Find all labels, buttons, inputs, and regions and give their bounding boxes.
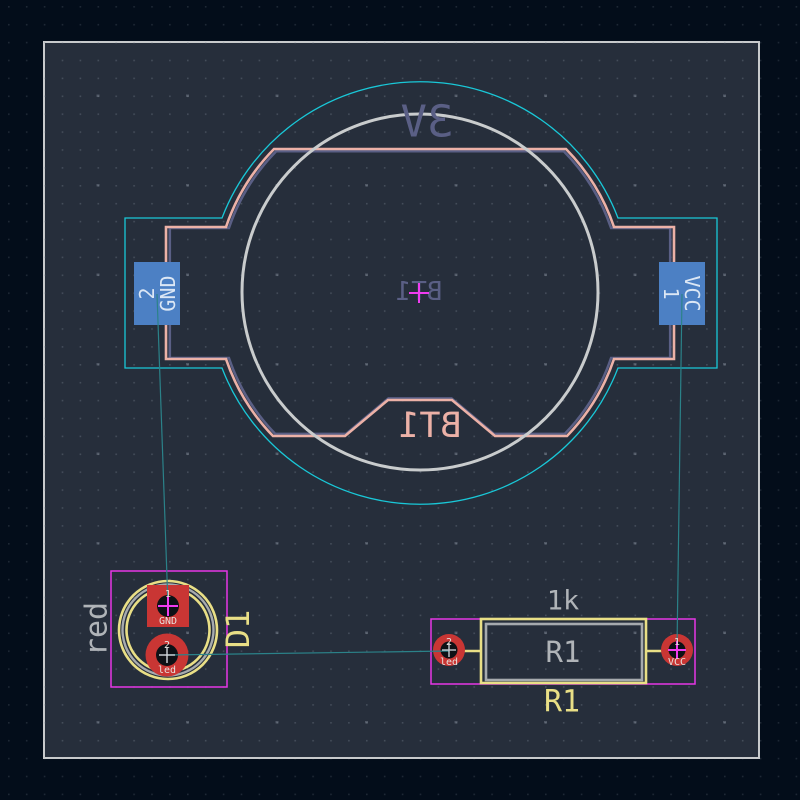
resistor-reference-silk-text[interactable]: R1 [544,685,580,720]
led-pad2-number-label: 2 [164,640,170,651]
resistor-reference-fab-text[interactable]: R1 [546,635,581,669]
resistor-pad1-net-label: VCC [668,657,686,668]
pcb-editor-canvas: 2 GND VCC 1 3V BT1 BT1 [0,0,800,800]
battery-pad-vcc-number: 1 [659,287,683,299]
resistor-pad1-number-label: 1 [674,637,680,648]
led-reference-text[interactable]: D1 [219,610,257,649]
led-value-text[interactable]: red [80,602,115,656]
resistor-pad2-net-label: led [440,657,458,668]
battery-pad-gnd-net: GND [156,275,180,311]
resistor-pad2-number-label: 2 [446,637,452,648]
resistor-value-text[interactable]: 1k [547,586,580,617]
battery-value-text[interactable]: 3V [401,97,454,148]
led-pad2-net-label: led [158,665,176,676]
led-pad1-number-label: 1 [165,589,171,600]
battery-reference-silk-text[interactable]: BT1 [398,406,461,446]
led-pad1-net-label: GND [159,616,177,627]
battery-pad-gnd[interactable]: 2 GND [134,262,180,325]
